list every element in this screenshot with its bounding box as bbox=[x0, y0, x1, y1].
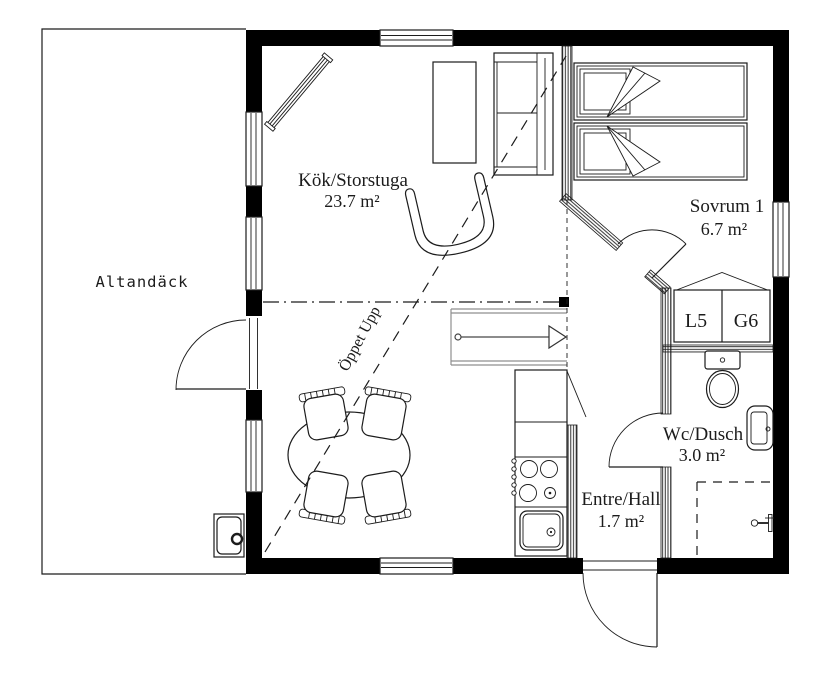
hall-area: 1.7 m² bbox=[598, 511, 644, 531]
wardrobe-right-label: G6 bbox=[734, 310, 758, 332]
armchair bbox=[404, 172, 499, 262]
staircase bbox=[451, 309, 567, 365]
stair-up-arrow bbox=[549, 326, 566, 348]
coffee-table bbox=[433, 62, 476, 163]
kitchen-sink bbox=[520, 511, 563, 550]
loft-ladder bbox=[265, 53, 333, 131]
window-bottom bbox=[380, 558, 453, 574]
window-right bbox=[773, 202, 789, 277]
wc-door bbox=[609, 413, 663, 467]
deck-door bbox=[176, 318, 258, 390]
window-top bbox=[380, 30, 453, 46]
wc-area: 3.0 m² bbox=[679, 445, 725, 465]
kitchen-living-name: Kök/Storstuga bbox=[298, 170, 408, 191]
deck-outline bbox=[42, 29, 246, 574]
deck-label: Altandäck bbox=[96, 273, 189, 291]
sofa bbox=[494, 53, 553, 175]
bed bbox=[574, 63, 747, 120]
deck-sink bbox=[214, 514, 244, 557]
wc-name: Wc/Dusch bbox=[663, 424, 744, 445]
shower-mixer bbox=[751, 515, 774, 532]
open-above-label: Öppet Upp bbox=[335, 303, 384, 374]
kitchen-counter bbox=[512, 370, 567, 556]
dining-set bbox=[288, 386, 411, 524]
toilet bbox=[705, 351, 740, 408]
bed bbox=[574, 123, 747, 180]
dining-chair bbox=[358, 469, 412, 524]
entrance-door bbox=[583, 561, 657, 647]
bedroom-area: 6.7 m² bbox=[701, 219, 747, 239]
wardrobe-left-label: L5 bbox=[685, 310, 707, 332]
window-left-lower bbox=[246, 420, 262, 492]
washbasin bbox=[747, 406, 773, 450]
hall-name: Entre/Hall bbox=[581, 489, 660, 510]
floor-plan: L5 G6 Altandäck Kök/Storstuga 23.7 m² So… bbox=[0, 0, 818, 674]
dining-chair bbox=[358, 386, 412, 441]
wardrobe-cabinet: L5 G6 bbox=[674, 273, 770, 343]
shower-area bbox=[697, 482, 774, 556]
bedroom-name: Sovrum 1 bbox=[690, 196, 764, 217]
window-left-upper bbox=[246, 112, 262, 186]
stair-direction-start bbox=[455, 334, 461, 340]
kitchen-living-area: 23.7 m² bbox=[324, 191, 379, 211]
window-left-middle bbox=[246, 217, 262, 290]
